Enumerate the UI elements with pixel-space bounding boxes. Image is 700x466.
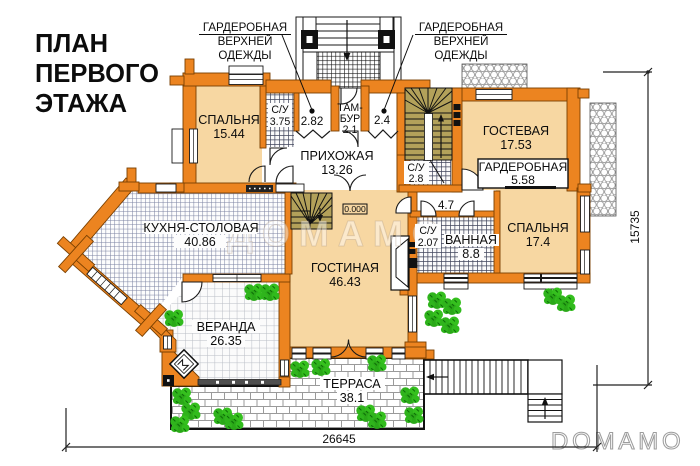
svg-text:DOMAMO: DOMAMO [551,428,684,455]
svg-text:17.53: 17.53 [500,138,532,152]
svg-text:17.4: 17.4 [526,235,551,249]
svg-text:ЭТАЖА: ЭТАЖА [35,90,127,118]
svg-text:ВЕРХНЕЙ: ВЕРХНЕЙ [434,35,489,48]
svg-text:ВЕРХНЕЙ: ВЕРХНЕЙ [218,35,273,48]
svg-text:ВЕРАНДА: ВЕРАНДА [197,320,256,334]
svg-text:2.8: 2.8 [409,173,424,185]
svg-text:2.4: 2.4 [374,114,391,127]
svg-text:0.000: 0.000 [344,204,366,214]
svg-text:15.44: 15.44 [213,127,245,141]
svg-text:3.75: 3.75 [270,116,291,128]
svg-text:КУХНЯ-СТОЛОВАЯ: КУХНЯ-СТОЛОВАЯ [143,221,258,235]
svg-text:38.1: 38.1 [340,391,365,405]
svg-text:5.58: 5.58 [511,173,535,187]
svg-text:ГАРДЕРОБНАЯ: ГАРДЕРОБНАЯ [203,21,287,34]
svg-text:ГОСТИНАЯ: ГОСТИНАЯ [311,261,379,275]
svg-text:13.26: 13.26 [321,163,353,177]
svg-text:2.1: 2.1 [343,124,358,136]
svg-text:ГАРДЕРОБНАЯ: ГАРДЕРОБНАЯ [479,160,568,174]
svg-text:С/У: С/У [419,225,437,237]
svg-text:ОДЕЖДЫ: ОДЕЖДЫ [434,49,487,62]
svg-text:ГАРДЕРОБНАЯ: ГАРДЕРОБНАЯ [419,21,503,34]
svg-text:ПЕРВОГО: ПЕРВОГО [35,60,159,88]
svg-text:ТЕРРАСА: ТЕРРАСА [323,377,381,391]
svg-text:46.43: 46.43 [329,275,361,289]
svg-text:40.86: 40.86 [184,235,216,249]
svg-text:ГОСТЕВАЯ: ГОСТЕВАЯ [483,124,549,138]
svg-text:ПЛАН: ПЛАН [35,30,108,58]
svg-text:4.7: 4.7 [438,199,454,212]
svg-text:8.8: 8.8 [462,247,480,261]
svg-text:26.35: 26.35 [210,334,242,348]
svg-text:ПРИХОЖАЯ: ПРИХОЖАЯ [300,149,373,163]
svg-text:ВАННАЯ: ВАННАЯ [445,233,497,247]
svg-text:ОДЕЖДЫ: ОДЕЖДЫ [218,49,271,62]
svg-text:2.82: 2.82 [301,115,324,128]
svg-text:2.07: 2.07 [418,237,439,249]
svg-text:СПАЛЬНЯ: СПАЛЬНЯ [198,113,260,127]
svg-text:С/У: С/У [271,104,289,116]
svg-text:СПАЛЬНЯ: СПАЛЬНЯ [507,221,569,235]
svg-text:15735: 15735 [628,210,642,244]
svg-text:26645: 26645 [322,432,356,446]
